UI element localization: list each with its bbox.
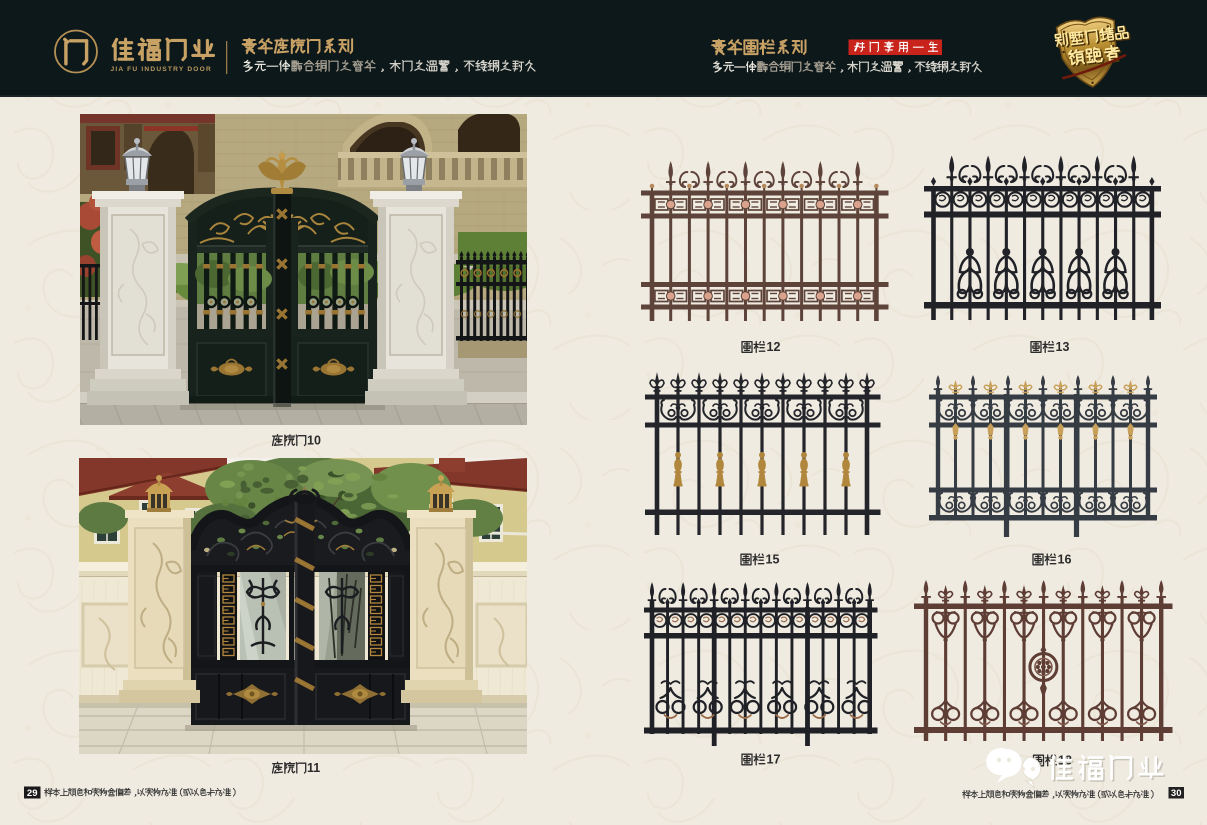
svg-text:10: 10 (307, 434, 321, 448)
svg-text:30: 30 (1171, 788, 1182, 799)
svg-text:16: 16 (1058, 553, 1072, 567)
svg-text:12: 12 (767, 340, 781, 354)
svg-text:JIA FU INDUSTRY DOOR: JIA FU INDUSTRY DOOR (111, 66, 212, 73)
svg-text:15: 15 (766, 553, 780, 567)
svg-text:11: 11 (307, 761, 320, 775)
svg-text:17: 17 (767, 753, 781, 767)
svg-text:13: 13 (1056, 340, 1070, 354)
svg-text:29: 29 (27, 788, 38, 799)
